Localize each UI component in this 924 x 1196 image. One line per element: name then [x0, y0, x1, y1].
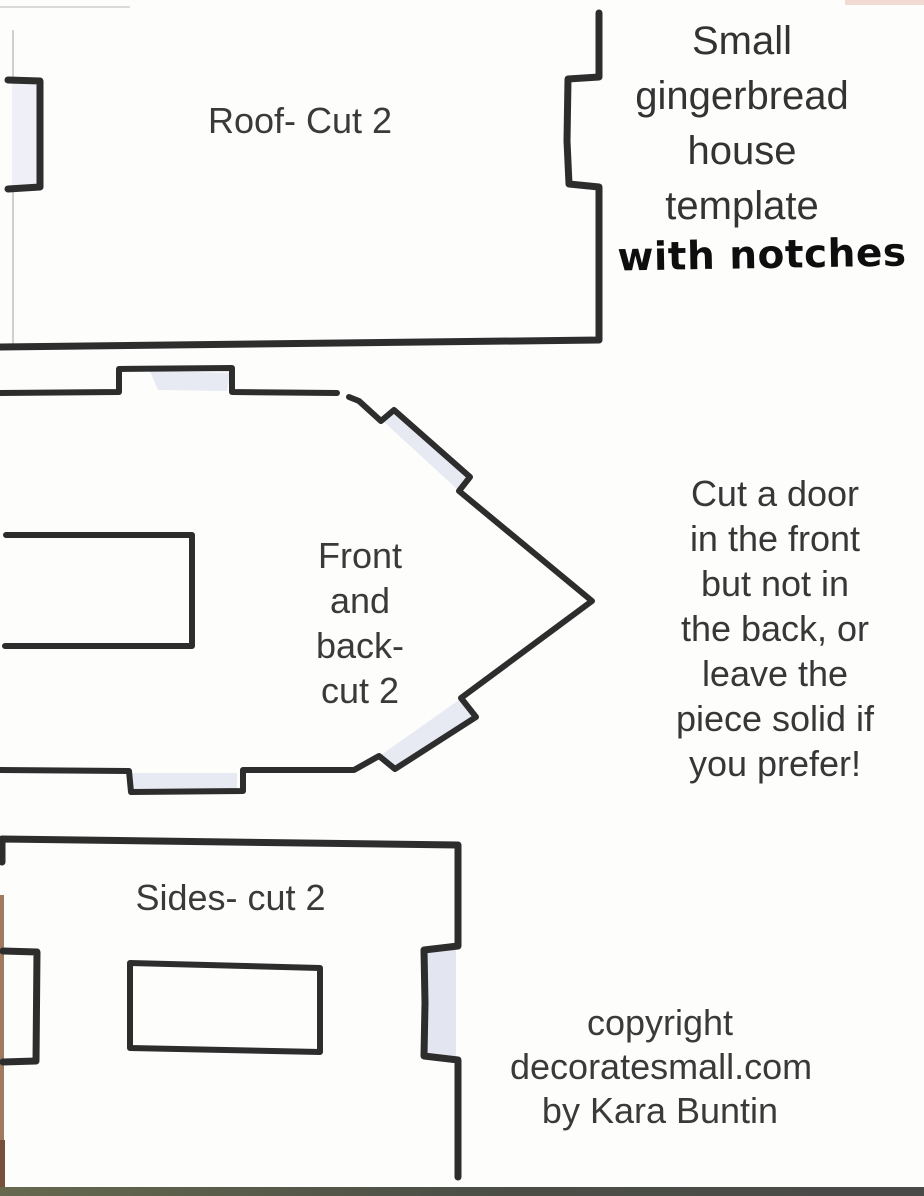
title-line: template: [560, 179, 924, 234]
front-upper-slope-notch-shading: [383, 411, 470, 489]
instruction-line: leave the: [635, 651, 915, 696]
roof-label-text: Roof- Cut 2: [145, 100, 455, 142]
front-label-line: back-: [260, 623, 460, 668]
scan-bottom-edge-strip: [0, 1187, 924, 1196]
page-title: Small gingerbread house template: [560, 14, 924, 234]
front-back-piece-label: Front and back- cut 2: [260, 533, 460, 713]
copyright-line: copyright: [510, 1001, 810, 1045]
front-label-line: cut 2: [260, 668, 460, 713]
door-instructions: Cut a door in the front but not in the b…: [635, 471, 915, 786]
front-label-line: and: [260, 578, 460, 623]
title-line: gingerbread: [560, 69, 924, 124]
title-line: house: [560, 124, 924, 179]
handwritten-note-text: with notches: [600, 230, 924, 281]
instruction-line: Cut a door: [635, 471, 915, 516]
template-page: Roof- Cut 2 Small gingerbread house temp…: [0, 0, 924, 1196]
sides-left-notch: [3, 951, 37, 1062]
title-line: Small: [560, 14, 924, 69]
roof-left-notch-shading: [12, 83, 38, 185]
front-label-line: Front: [260, 533, 460, 578]
sides-label-text: Sides- cut 2: [78, 877, 383, 919]
front-top-tab-shading: [150, 371, 230, 391]
roof-piece-label: Roof- Cut 2: [145, 100, 455, 142]
sides-window-outline: [130, 963, 320, 1052]
roof-piece-outline: [0, 13, 599, 347]
copyright-notice: copyright decoratesmall.com by Kara Bunt…: [510, 1001, 810, 1133]
instruction-line: piece solid if: [635, 696, 915, 741]
front-bottom-tab-shading: [132, 773, 237, 789]
sides-piece-label: Sides- cut 2: [78, 877, 383, 919]
copyright-line: decoratesmall.com: [510, 1045, 810, 1089]
scan-top-right-sliver: [845, 0, 924, 5]
instruction-line: in the front: [635, 516, 915, 561]
instruction-line: you prefer!: [635, 741, 915, 786]
front-door-outline: [5, 535, 192, 646]
instruction-line: but not in: [635, 561, 915, 606]
sides-right-notch-shading: [426, 948, 456, 1058]
copyright-line: by Kara Buntin: [510, 1089, 810, 1133]
handwritten-note: with notches: [600, 230, 924, 281]
instruction-line: the back, or: [635, 606, 915, 651]
